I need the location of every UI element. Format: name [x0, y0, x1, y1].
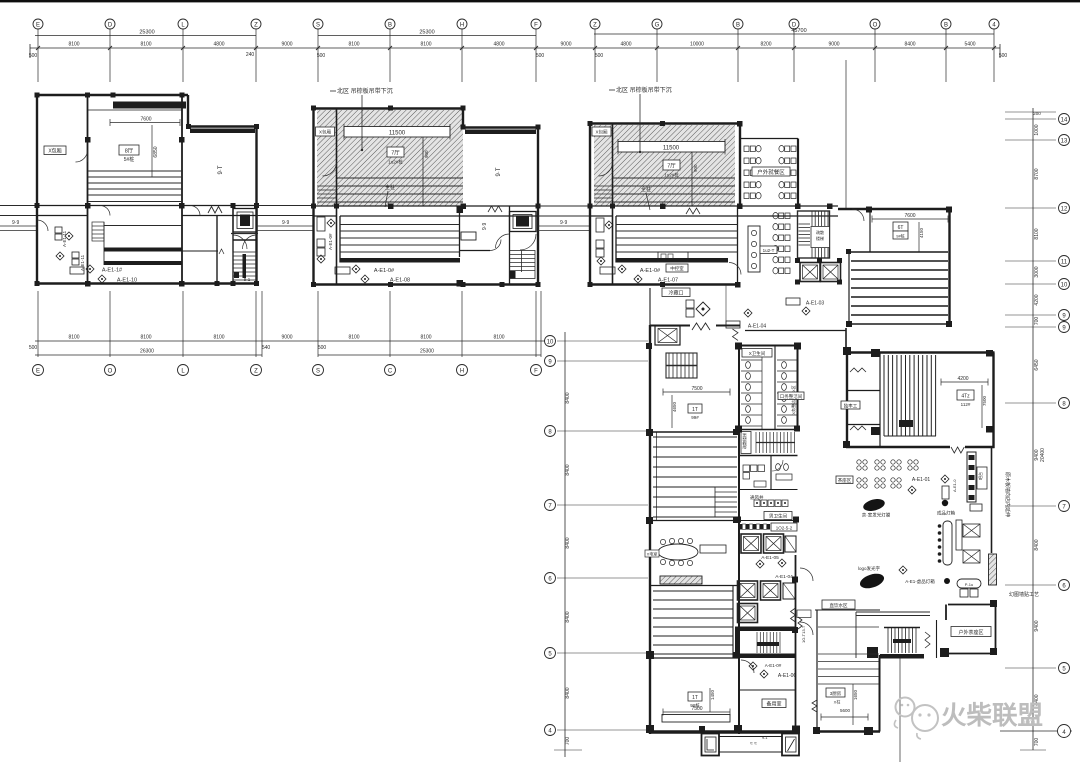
svg-text:F: F: [534, 23, 538, 29]
svg-text:9-1: 9-1: [244, 277, 251, 282]
svg-text:11500: 11500: [389, 131, 406, 137]
svg-text:9000: 9000: [828, 42, 839, 48]
svg-text:3厨房: 3厨房: [830, 690, 842, 697]
svg-text:A-E1-0#: A-E1-0#: [328, 233, 333, 250]
svg-text:卖·室发光灯膜: 卖·室发光灯膜: [862, 512, 891, 519]
svg-text:500: 500: [318, 345, 327, 351]
svg-text:冷藏口: 冷藏口: [668, 290, 683, 297]
svg-text:5600: 5600: [840, 708, 851, 713]
svg-text:1O2-5-2: 1O2-5-2: [776, 526, 793, 531]
svg-text:1u2#桩: 1u2#桩: [664, 172, 679, 179]
svg-text:8400: 8400: [904, 42, 915, 48]
svg-text:8100: 8100: [68, 335, 79, 341]
svg-text:26300: 26300: [140, 349, 154, 355]
svg-text:8厅: 8厅: [125, 148, 134, 155]
svg-text:A-E1-10: A-E1-10: [117, 278, 137, 284]
svg-text:8100: 8100: [348, 42, 359, 48]
svg-text:45700: 45700: [791, 28, 806, 34]
svg-text:S: S: [316, 23, 320, 29]
svg-text:1u2#桩: 1u2#桩: [388, 159, 403, 166]
svg-text:4650: 4650: [672, 401, 677, 412]
svg-text:1450: 1450: [710, 689, 715, 700]
svg-text:A-E1-0#: A-E1-0#: [765, 663, 782, 668]
svg-text:9·T: 9·T: [218, 165, 224, 174]
svg-text:9·9: 9·9: [12, 220, 19, 226]
svg-text:500: 500: [595, 53, 604, 59]
svg-text:备用室: 备用室: [766, 701, 781, 708]
svg-text:P-1u: P-1u: [965, 582, 973, 587]
svg-text:5400: 5400: [964, 42, 975, 48]
svg-text:G: G: [655, 23, 660, 29]
svg-text:112#: 112#: [961, 402, 971, 407]
svg-text:900: 900: [693, 164, 698, 172]
svg-text:D: D: [108, 23, 113, 29]
svg-text:700: 700: [1034, 738, 1040, 747]
svg-text:8100: 8100: [140, 335, 151, 341]
svg-text:A-E1-03: A-E1-03: [806, 301, 825, 307]
svg-text:茶座区: 茶座区: [838, 477, 852, 484]
svg-text:B: B: [388, 23, 392, 29]
svg-text:7厅: 7厅: [667, 163, 676, 170]
svg-text:8400: 8400: [565, 687, 571, 698]
svg-text:A-E1-11: A-E1-11: [62, 230, 67, 247]
svg-text:男卫生间: 男卫生间: [769, 513, 787, 520]
svg-text:9·9: 9·9: [560, 220, 567, 226]
svg-text:8100: 8100: [493, 335, 504, 341]
svg-text:9#桩: 9#桩: [690, 702, 700, 709]
svg-text:Z: Z: [254, 23, 258, 29]
svg-text:1T: 1T: [692, 695, 698, 701]
svg-text:H: H: [460, 23, 464, 29]
svg-text:1u2-T: 1u2-T: [763, 248, 775, 253]
svg-text:X包厢: X包厢: [595, 129, 608, 136]
svg-text:5#桩: 5#桩: [124, 156, 135, 163]
svg-text:4800: 4800: [493, 42, 504, 48]
svg-text:8100: 8100: [348, 335, 359, 341]
svg-text:nnnn: nnnn: [1022, 720, 1035, 726]
svg-text:幻图墙贴工艺: 幻图墙贴工艺: [1009, 591, 1039, 598]
svg-text:500: 500: [29, 53, 38, 59]
svg-text:北区 吊棕板吊带下沉: 北区 吊棕板吊带下沉: [616, 86, 672, 94]
svg-text:700: 700: [565, 737, 571, 746]
svg-text:3000: 3000: [1034, 266, 1040, 277]
svg-text:25300: 25300: [139, 30, 154, 36]
svg-text:X包厢: X包厢: [319, 129, 332, 136]
svg-text:E: E: [36, 23, 40, 29]
svg-text:8400: 8400: [565, 537, 571, 548]
svg-text:9·9: 9·9: [282, 220, 289, 226]
svg-text:540: 540: [262, 345, 271, 351]
svg-text:8400: 8400: [1034, 539, 1040, 550]
svg-text:8100: 8100: [140, 42, 151, 48]
svg-text:10: 10: [1061, 283, 1068, 289]
svg-text:500: 500: [999, 53, 1008, 59]
svg-text:20400: 20400: [1040, 448, 1046, 462]
svg-text:X柱: X柱: [834, 699, 841, 705]
svg-text:8400: 8400: [565, 464, 571, 475]
svg-text:6T: 6T: [898, 225, 904, 231]
svg-text:户外茶座区: 户外茶座区: [958, 629, 983, 636]
svg-text:成品灯箱: 成品灯箱: [937, 510, 955, 517]
svg-text:700: 700: [1034, 317, 1040, 326]
svg-text:200: 200: [1033, 111, 1041, 116]
svg-text:7500: 7500: [691, 386, 702, 392]
svg-text:S: S: [316, 369, 320, 375]
svg-text:全柱: 全柱: [641, 186, 651, 193]
svg-text:B: B: [736, 23, 740, 29]
svg-text:8400: 8400: [565, 392, 571, 403]
svg-text:楼梯: 楼梯: [816, 235, 824, 241]
svg-text:Z: Z: [254, 369, 258, 375]
svg-text:原木板墙向店内延伸: 原木板墙向店内延伸: [1004, 472, 1011, 517]
svg-text:6850: 6850: [153, 146, 159, 157]
svg-text:10000: 10000: [690, 42, 704, 48]
svg-text:9·T: 9·T: [496, 167, 502, 176]
svg-text:全柱: 全柱: [385, 184, 395, 191]
svg-text:9-1: 9-1: [762, 736, 768, 740]
svg-text:1000: 1000: [1034, 124, 1040, 135]
svg-text:4800: 4800: [213, 42, 224, 48]
svg-text:≈ ≈: ≈ ≈: [750, 741, 757, 747]
svg-text:A-E1-1#: A-E1-1#: [102, 268, 123, 274]
svg-text:户外就餐区: 户外就餐区: [757, 168, 785, 176]
svg-text:X包厢: X包厢: [48, 148, 61, 155]
svg-text:8100: 8100: [420, 335, 431, 341]
svg-text:10: 10: [547, 340, 554, 346]
svg-text:4200: 4200: [1034, 294, 1040, 305]
svg-text:E: E: [36, 369, 40, 375]
svg-text:吧台: 吧台: [977, 472, 983, 480]
svg-text:直饮水区: 直饮水区: [830, 602, 848, 609]
svg-text:A-E1-0#: A-E1-0#: [374, 268, 395, 274]
svg-text:4200: 4200: [957, 376, 968, 382]
svg-text:25300: 25300: [419, 30, 434, 36]
svg-text:logo发光字: logo发光字: [858, 565, 881, 572]
svg-text:8100: 8100: [1034, 228, 1040, 239]
svg-text:1T: 1T: [692, 407, 698, 413]
svg-text:9#桩: 9#桩: [896, 233, 904, 239]
svg-text:240: 240: [246, 52, 255, 58]
svg-text:口务整洁间: 口务整洁间: [780, 393, 803, 400]
svg-text:500: 500: [317, 53, 326, 59]
svg-text:500: 500: [29, 345, 38, 351]
svg-text:A-E1-0#: A-E1-0#: [640, 268, 661, 274]
svg-text:500: 500: [536, 53, 545, 59]
svg-text:4150: 4150: [919, 227, 924, 238]
svg-text:疏散: 疏散: [816, 229, 824, 235]
svg-text:A-E1-0: A-E1-0: [952, 479, 957, 492]
svg-text:X卫生间: X卫生间: [749, 350, 766, 357]
svg-text:疏散楼梯: 疏散楼梯: [741, 433, 747, 449]
svg-text:F: F: [534, 369, 538, 375]
svg-text:X电室: X电室: [647, 551, 658, 557]
svg-text:4Tz: 4Tz: [961, 394, 970, 400]
svg-text:8100: 8100: [420, 42, 431, 48]
svg-text:8200: 8200: [760, 42, 771, 48]
svg-text:H: H: [460, 369, 464, 375]
svg-text:中控室: 中控室: [670, 265, 684, 272]
svg-text:13: 13: [1061, 139, 1068, 145]
svg-text:X务整洁间带X区: X务整洁间带X区: [790, 385, 796, 414]
svg-text:A-E1-04: A-E1-04: [775, 574, 793, 580]
svg-text:北区 吊棕板吊带下沉: 北区 吊棕板吊带下沉: [337, 87, 393, 95]
svg-text:4800: 4800: [620, 42, 631, 48]
svg-text:1650: 1650: [853, 689, 858, 700]
svg-text:25300: 25300: [420, 349, 434, 355]
svg-text:Z: Z: [593, 23, 597, 29]
svg-text:7600: 7600: [140, 117, 151, 123]
svg-text:8400: 8400: [565, 611, 571, 622]
svg-text:14: 14: [1061, 118, 1068, 124]
svg-text:C: C: [388, 369, 393, 375]
svg-text:11: 11: [1061, 260, 1068, 266]
svg-text:6450: 6450: [1034, 359, 1040, 370]
svg-text:A-E1-06: A-E1-06: [778, 673, 797, 679]
svg-text:A-E1-01: A-E1-01: [912, 477, 931, 483]
svg-text:8100: 8100: [68, 42, 79, 48]
svg-text:12: 12: [1061, 207, 1068, 213]
svg-text:O: O: [108, 369, 113, 375]
svg-text:9·9: 9·9: [482, 223, 488, 230]
svg-text:99#: 99#: [691, 415, 699, 420]
svg-text:7500: 7500: [982, 395, 987, 406]
svg-text:A-E1-04: A-E1-04: [748, 324, 767, 330]
svg-text:独率工: 独率工: [844, 403, 858, 410]
svg-text:O: O: [873, 23, 878, 29]
svg-text:7厅: 7厅: [391, 150, 400, 157]
svg-text:9000: 9000: [560, 42, 571, 48]
svg-text:A-E1-05: A-E1-05: [761, 555, 779, 561]
svg-text:9400: 9400: [1034, 620, 1040, 631]
svg-text:8100: 8100: [213, 335, 224, 341]
svg-text:11500: 11500: [663, 146, 680, 152]
svg-text:B: B: [944, 23, 948, 29]
svg-text:7600: 7600: [904, 213, 915, 219]
svg-text:9000: 9000: [281, 335, 292, 341]
svg-text:1O-T13-T: 1O-T13-T: [801, 625, 806, 643]
svg-text:8700: 8700: [1034, 168, 1040, 179]
svg-text:9000: 9000: [281, 42, 292, 48]
svg-text:A-E1-虚品灯箱: A-E1-虚品灯箱: [905, 578, 935, 585]
svg-text:900: 900: [424, 150, 429, 158]
